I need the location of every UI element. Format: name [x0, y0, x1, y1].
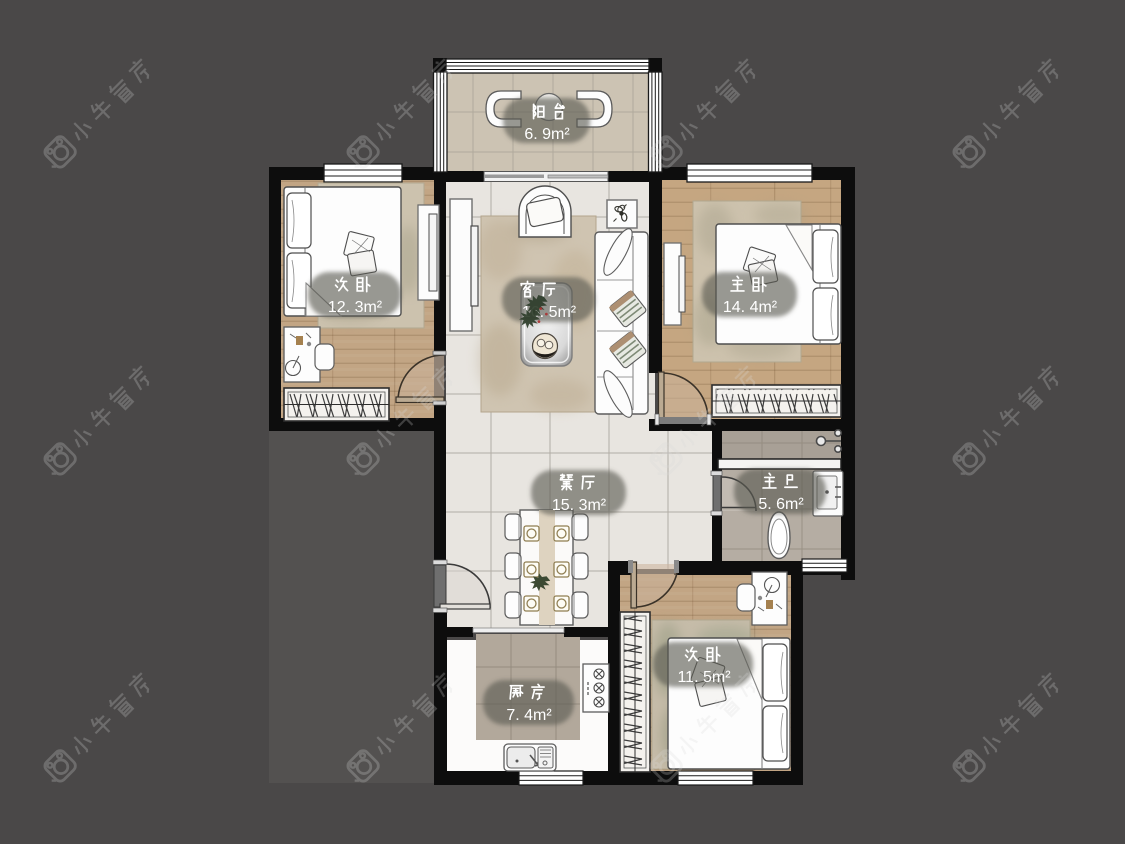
svg-text:5. 6m²: 5. 6m²: [758, 496, 804, 513]
svg-text:11. 5m²: 11. 5m²: [677, 669, 731, 686]
svg-text:14. 4m²: 14. 4m²: [723, 299, 778, 316]
svg-text:15. 3m²: 15. 3m²: [552, 497, 607, 514]
svg-text:7. 4m²: 7. 4m²: [506, 707, 552, 724]
svg-text:6. 9m²: 6. 9m²: [524, 126, 570, 143]
svg-text:12. 3m²: 12. 3m²: [328, 299, 383, 316]
